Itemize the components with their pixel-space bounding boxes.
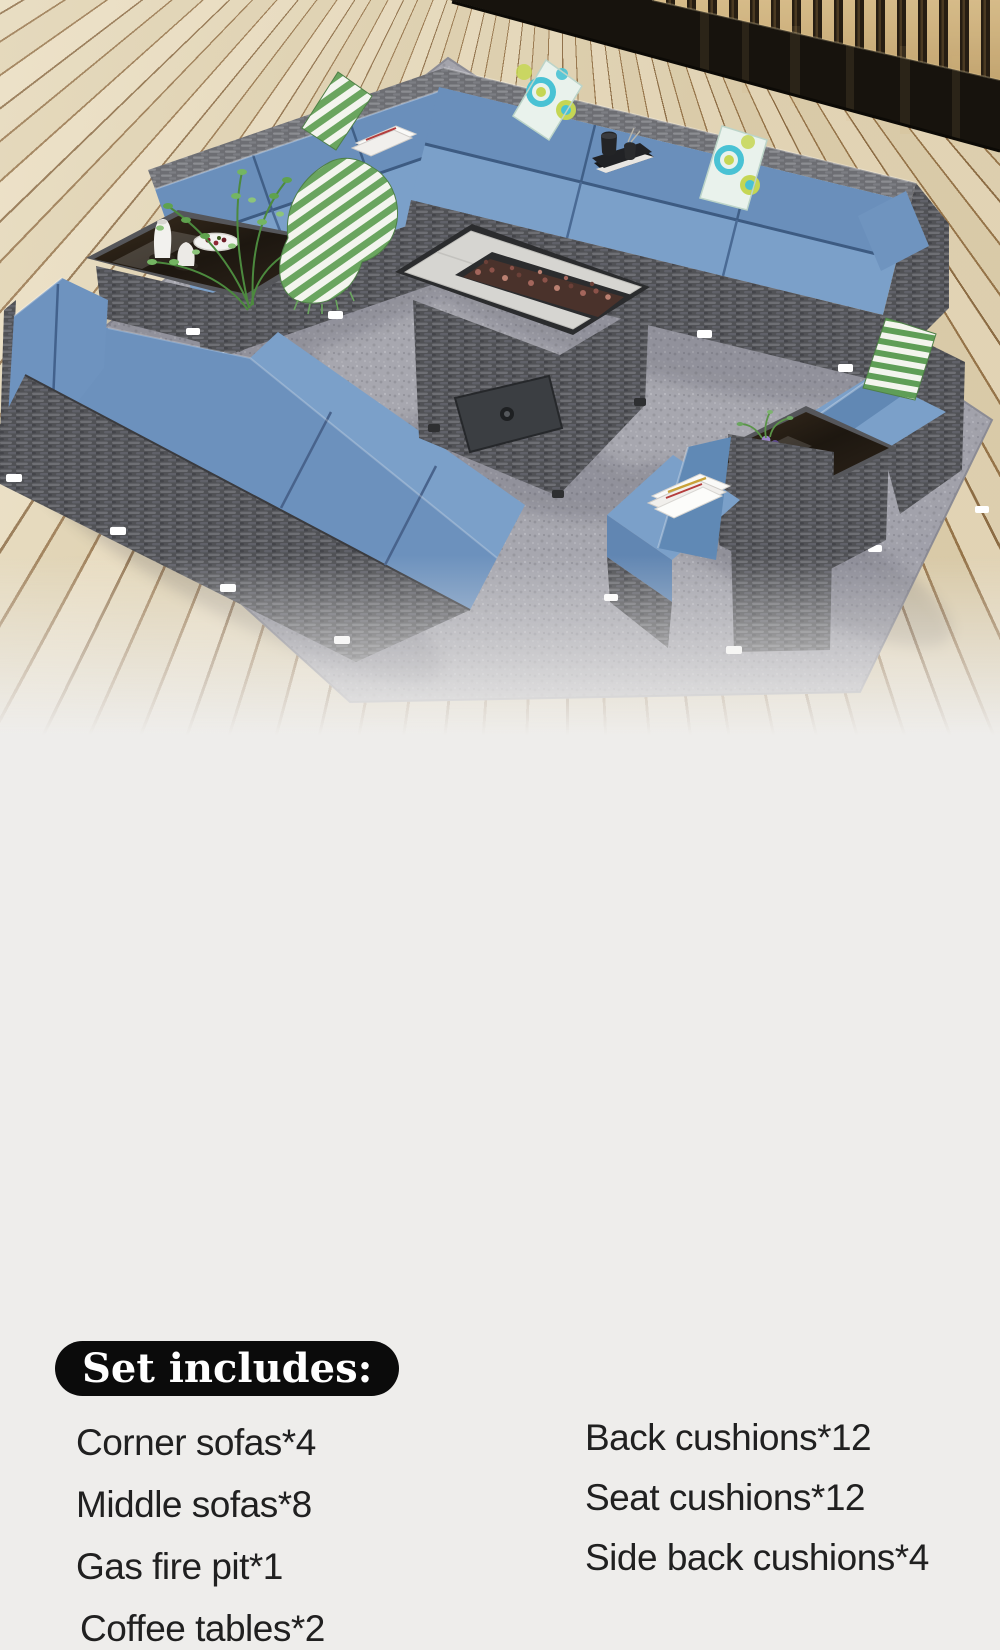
list-item-side-back-cushions: Side back cushions*4 — [585, 1537, 929, 1579]
product-photo — [0, 0, 1000, 760]
list-item-corner-sofas: Corner sofas*4 — [76, 1422, 316, 1464]
list-item-seat-cushions: Seat cushions*12 — [585, 1477, 865, 1519]
list-item-gas-fire-pit: Gas fire pit*1 — [76, 1546, 283, 1588]
set-includes-legend: Set includes: Corner sofas*4 Middle sofa… — [0, 660, 1000, 1000]
list-item-coffee-tables: Coffee tables*2 — [80, 1608, 325, 1650]
set-includes-heading: Set includes: — [55, 1341, 399, 1396]
list-item-middle-sofas: Middle sofas*8 — [76, 1484, 312, 1526]
list-item-back-cushions: Back cushions*12 — [585, 1417, 871, 1459]
